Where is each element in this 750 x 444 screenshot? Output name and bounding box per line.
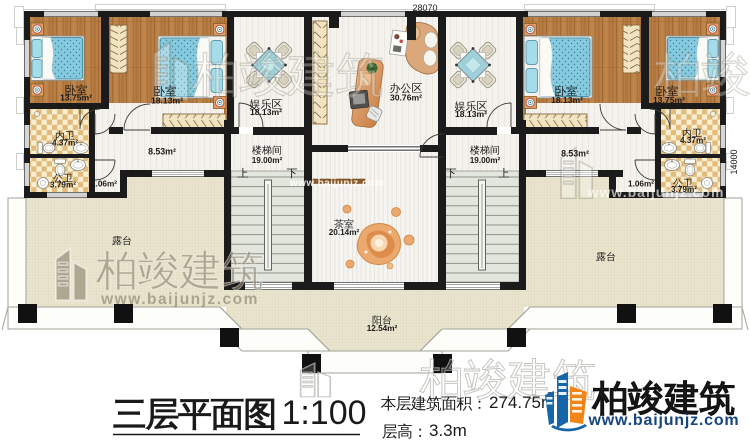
svg-text:18.13m²: 18.13m²	[455, 109, 487, 119]
svg-text:8.53m²: 8.53m²	[561, 149, 589, 159]
svg-text:www.baijunjz.com: www.baijunjz.com	[588, 412, 740, 429]
svg-text:3.3m: 3.3m	[429, 421, 467, 440]
svg-text:19.00m²: 19.00m²	[470, 156, 501, 165]
svg-text:1.06m²: 1.06m²	[628, 180, 654, 189]
svg-text:18.13m²: 18.13m²	[250, 107, 282, 117]
svg-text:www.baijunjz.com: www.baijunjz.com	[587, 184, 725, 200]
svg-text:13.75m²: 13.75m²	[60, 93, 92, 103]
svg-text:4.37m²: 4.37m²	[680, 136, 706, 145]
svg-text:8.53m²: 8.53m²	[148, 147, 176, 157]
svg-text:3.79m²: 3.79m²	[50, 181, 76, 190]
svg-text:1.06m²: 1.06m²	[91, 180, 117, 189]
svg-text:18.13m²: 18.13m²	[551, 95, 583, 105]
svg-text:www.baijunjz.com: www.baijunjz.com	[100, 291, 259, 308]
svg-text:www.baijunjz.com: www.baijunjz.com	[289, 178, 384, 189]
svg-text:28070: 28070	[412, 3, 437, 13]
svg-text:4.37m²: 4.37m²	[52, 139, 78, 148]
svg-text:3.79m²: 3.79m²	[671, 185, 697, 194]
svg-text:20.14m²: 20.14m²	[329, 228, 360, 237]
svg-text:19.00m²: 19.00m²	[252, 156, 283, 165]
svg-text:12.54m²: 12.54m²	[367, 324, 398, 333]
svg-text:1:100: 1:100	[281, 394, 366, 432]
svg-text:13.75m²: 13.75m²	[653, 95, 685, 105]
svg-text:14000: 14000	[729, 149, 739, 174]
svg-text:30.76m²: 30.76m²	[390, 93, 422, 103]
svg-text:18.13m²: 18.13m²	[151, 96, 183, 106]
